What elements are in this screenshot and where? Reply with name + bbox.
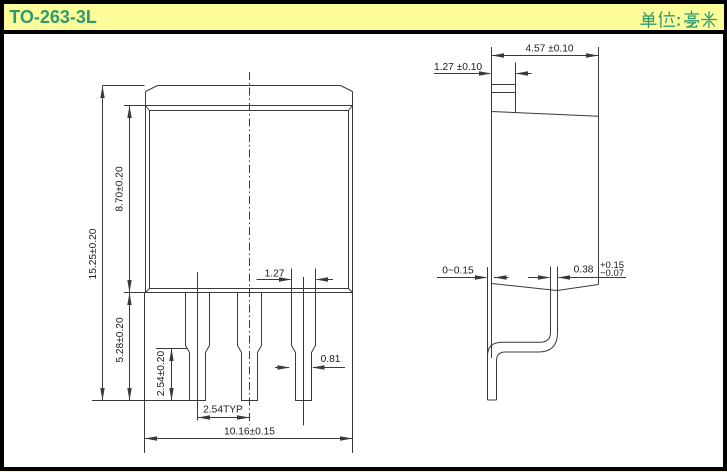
svg-text:0.81: 0.81 xyxy=(321,354,341,365)
svg-text:−0.07: −0.07 xyxy=(600,268,624,279)
svg-text:0~0.15: 0~0.15 xyxy=(442,266,474,277)
svg-text:0.38: 0.38 xyxy=(574,265,594,276)
svg-text:2.54±0.20: 2.54±0.20 xyxy=(156,351,167,397)
svg-text:10.16±0.15: 10.16±0.15 xyxy=(224,427,275,438)
svg-text:1.27: 1.27 xyxy=(265,269,285,280)
svg-text:5.28±0.20: 5.28±0.20 xyxy=(115,317,126,363)
svg-text:2.54TYP: 2.54TYP xyxy=(203,405,243,416)
svg-text:1.27 ±0.10: 1.27 ±0.10 xyxy=(434,62,482,73)
svg-text:15.25±0.20: 15.25±0.20 xyxy=(88,228,99,279)
svg-text:4.57 ±0.10: 4.57 ±0.10 xyxy=(525,44,573,55)
svg-text:8.70±0.20: 8.70±0.20 xyxy=(115,166,126,212)
